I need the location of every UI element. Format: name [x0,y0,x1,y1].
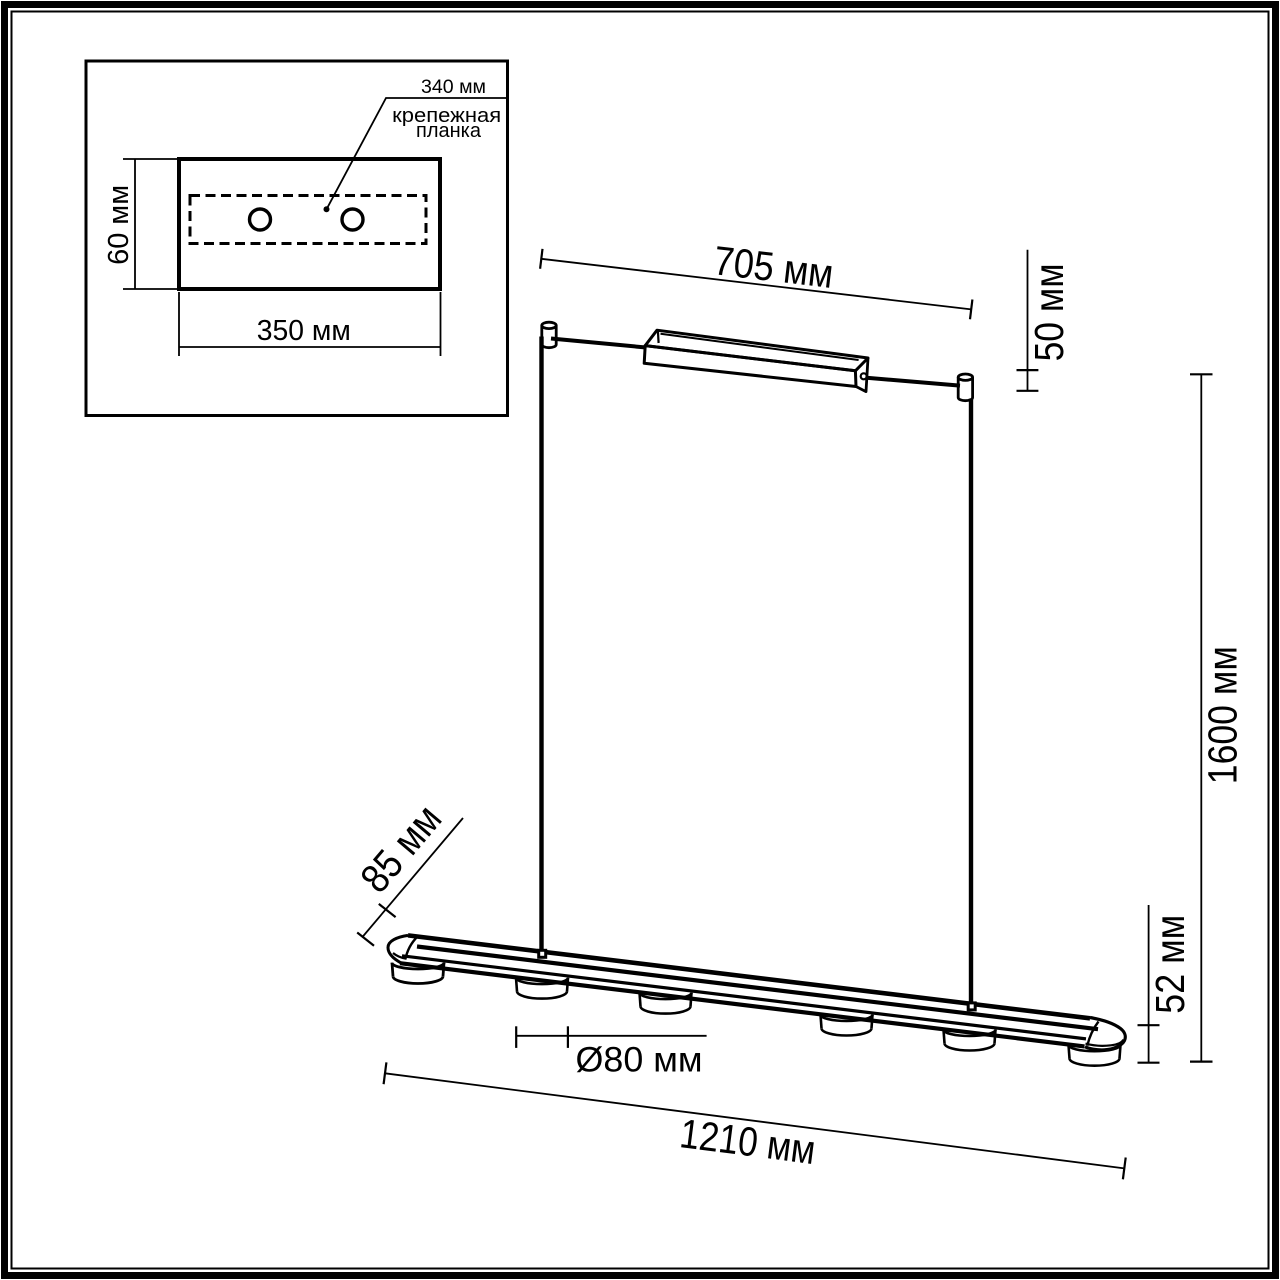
svg-text:Ø80 мм: Ø80 мм [576,1040,703,1080]
svg-text:1600 мм: 1600 мм [1200,646,1246,784]
svg-text:350 мм: 350 мм [257,315,351,347]
svg-text:планка: планка [416,120,482,142]
svg-text:60 мм: 60 мм [103,185,135,265]
svg-text:52 мм: 52 мм [1147,915,1193,1014]
svg-text:50 мм: 50 мм [1026,263,1072,361]
svg-text:340 мм: 340 мм [421,77,486,98]
